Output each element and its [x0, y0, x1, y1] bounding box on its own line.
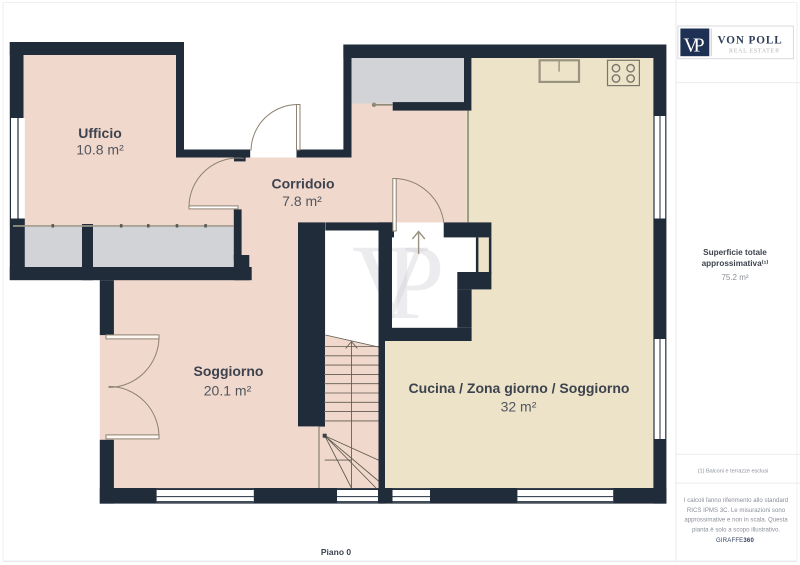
svg-text:(1) Balconi e terrazze esclusi: (1) Balconi e terrazze esclusi [698, 468, 769, 474]
svg-text:75.2 m²: 75.2 m² [721, 273, 748, 282]
svg-text:Superficie totale: Superficie totale [703, 248, 767, 257]
svg-text:Cucina / Zona giorno / Soggior: Cucina / Zona giorno / Soggiorno [409, 380, 630, 396]
svg-text:32 m²: 32 m² [501, 399, 537, 415]
svg-text:Ufficio: Ufficio [78, 125, 122, 141]
svg-text:pianta è solo a scopo illustra: pianta è solo a scopo illustrativo. [692, 526, 780, 533]
svg-text:P: P [694, 35, 705, 57]
svg-text:VON POLL: VON POLL [718, 35, 783, 47]
svg-text:7.8 m²: 7.8 m² [282, 193, 322, 209]
svg-text:20.1 m²: 20.1 m² [204, 383, 252, 399]
svg-text:RICS IPMS 3C. Le misurazioni s: RICS IPMS 3C. Le misurazioni sono [687, 507, 786, 514]
svg-text:10.8 m²: 10.8 m² [76, 142, 124, 158]
svg-text:GIRAFFE360: GIRAFFE360 [716, 538, 754, 544]
svg-text:I calcoli fanno riferimento al: I calcoli fanno riferimento allo standar… [684, 497, 788, 504]
svg-text:approssimativa⁽¹⁾: approssimativa⁽¹⁾ [702, 259, 769, 268]
svg-text:approssimative e non in scala.: approssimative e non in scala. Questa [684, 517, 788, 524]
svg-text:Soggiorno: Soggiorno [194, 363, 264, 379]
svg-text:P: P [385, 224, 445, 342]
svg-text:REAL ESTATE®: REAL ESTATE® [729, 48, 780, 55]
svg-text:Piano 0: Piano 0 [321, 547, 352, 557]
svg-text:Corridoio: Corridoio [272, 176, 335, 192]
